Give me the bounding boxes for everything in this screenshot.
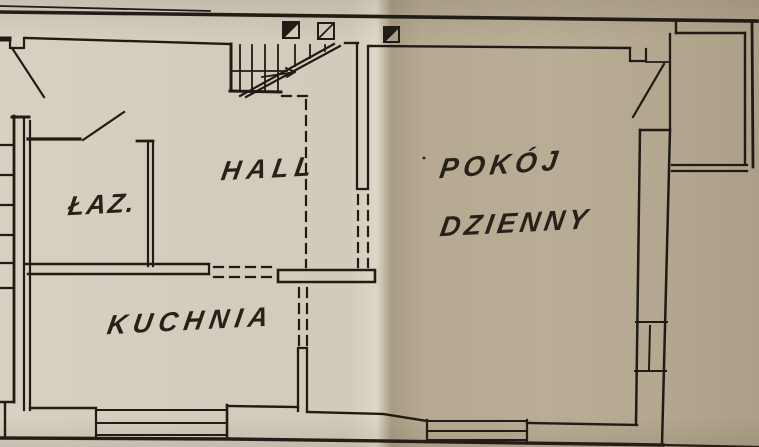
living-room-door-swing — [633, 64, 664, 117]
living-room-door-jamb — [630, 48, 646, 61]
floor-plan-photo: ŁAZ. HALL KUCHNIA POKÓJ DZIENNY — [0, 0, 759, 447]
living-room-east-window — [635, 322, 667, 371]
header-wall — [278, 270, 375, 282]
room-label-hall: HALL — [219, 151, 320, 187]
living-room-walls — [307, 34, 747, 445]
kitchen-living-wall-stub — [298, 348, 307, 411]
flue-symbol-filled-icon — [384, 27, 399, 42]
kitchen-window — [96, 405, 227, 437]
hall-living-wall — [357, 43, 368, 189]
kitchen-walls — [25, 264, 375, 437]
flue-symbols — [283, 22, 399, 42]
flue-symbol-open-icon — [318, 23, 334, 39]
room-label-bathroom: ŁAZ. — [66, 187, 138, 222]
flue-symbol-filled-icon — [283, 22, 299, 38]
floor-plan-drawing — [0, 0, 759, 447]
outer-walls — [0, 6, 759, 447]
entrance-door-jamb — [10, 38, 24, 48]
nook-south-wall — [672, 165, 747, 171]
bathroom-walls — [24, 112, 153, 410]
entrance-door-swing — [12, 48, 44, 97]
pen-speck — [423, 157, 426, 160]
living-room-south-window — [427, 420, 527, 442]
top-wall-inner — [0, 20, 745, 164]
bathroom-door-swing — [83, 112, 124, 140]
stairs — [230, 44, 340, 97]
